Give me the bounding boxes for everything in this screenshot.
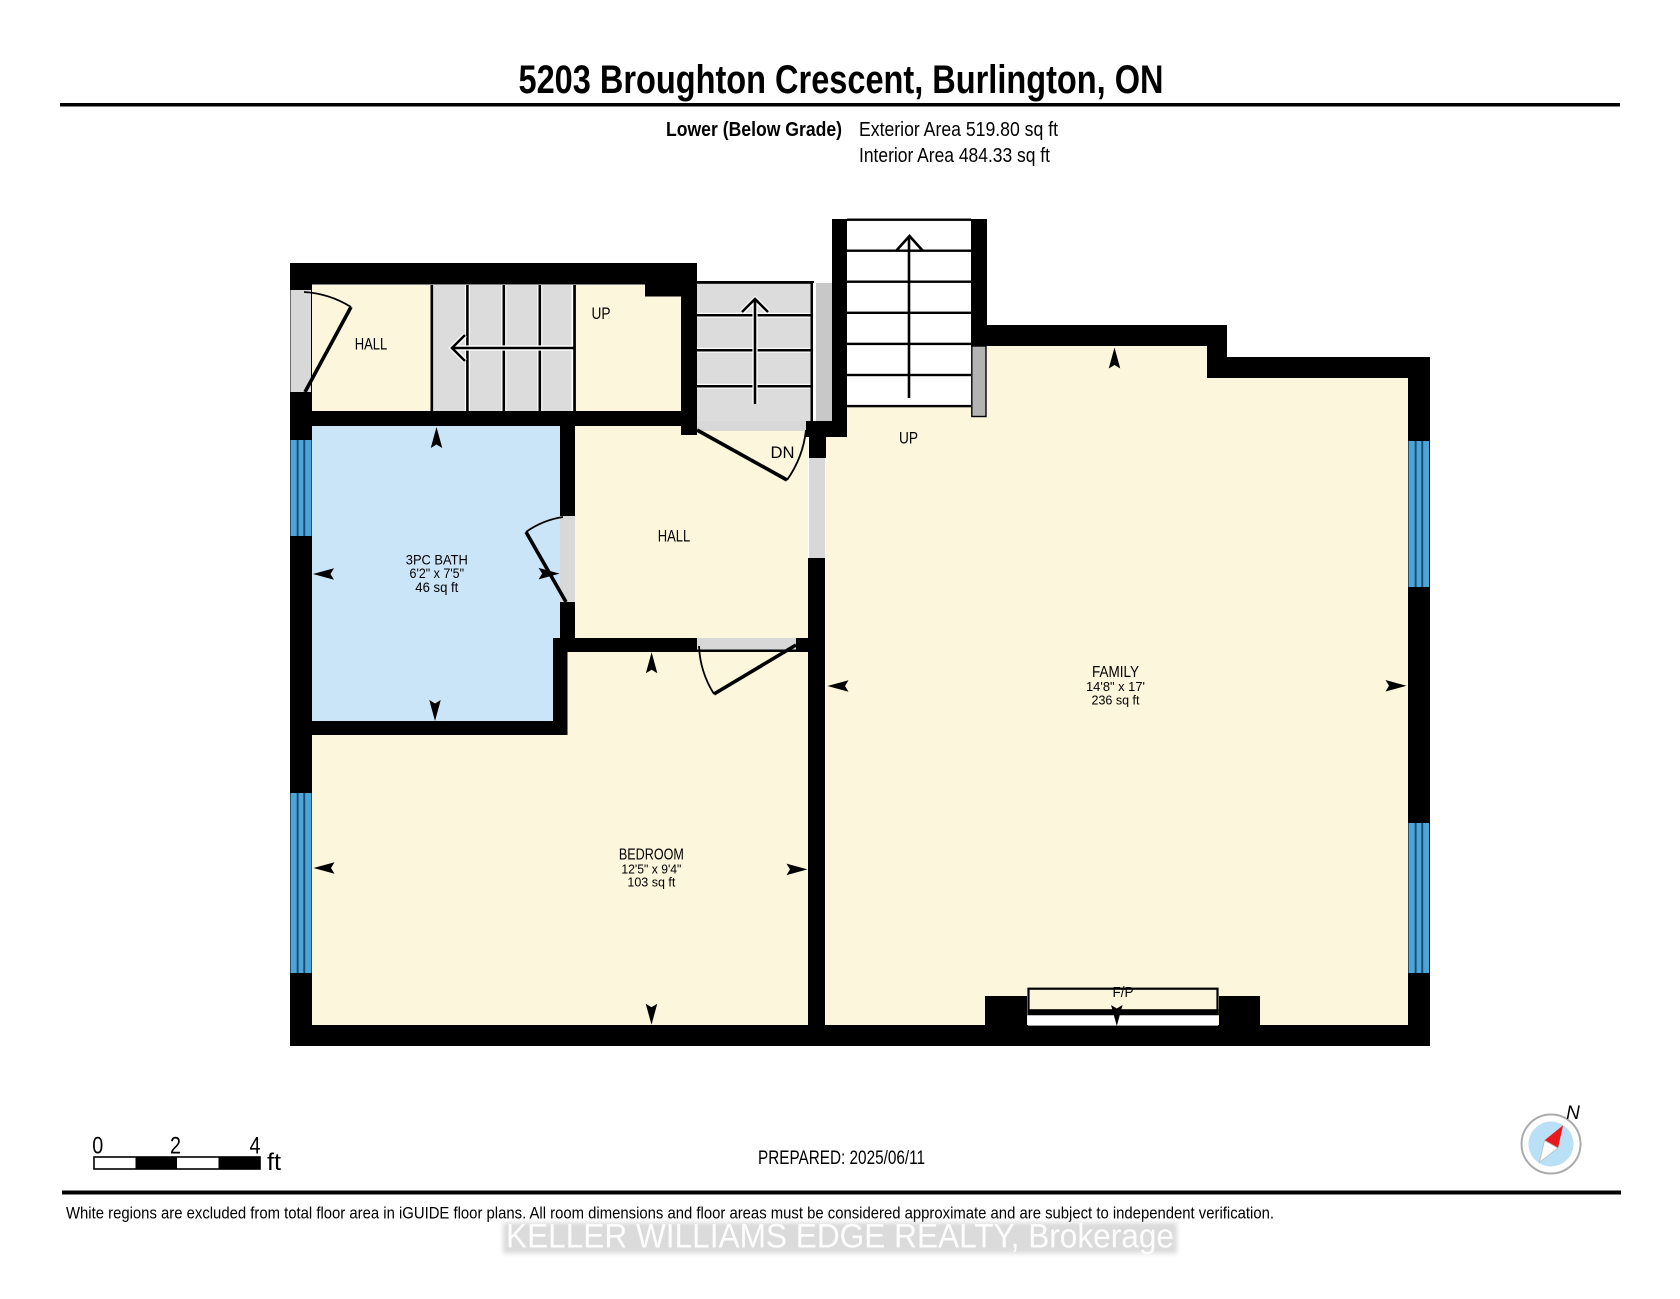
svg-text:Lower (Below Grade): Lower (Below Grade) (666, 119, 842, 141)
svg-text:6'2" x 7'5": 6'2" x 7'5" (410, 566, 465, 581)
svg-text:HALL: HALL (658, 527, 691, 546)
svg-text:Exterior Area 519.80 sq ft: Exterior Area 519.80 sq ft (859, 119, 1058, 141)
svg-text:3PC BATH: 3PC BATH (406, 552, 468, 568)
svg-text:UP: UP (592, 305, 611, 323)
svg-text:HALL: HALL (355, 335, 388, 354)
svg-text:KELLER WILLIAMS EDGE REALTY, B: KELLER WILLIAMS EDGE REALTY, Brokerage (506, 1218, 1174, 1256)
svg-text:14'8" x 17': 14'8" x 17' (1086, 679, 1145, 694)
svg-text:2: 2 (170, 1133, 181, 1160)
svg-text:5203 Broughton Crescent, Burli: 5203 Broughton Crescent, Burlington, ON (519, 58, 1164, 102)
svg-text:N: N (1566, 1103, 1580, 1124)
svg-text:46 sq ft: 46 sq ft (415, 580, 458, 595)
svg-text:PREPARED: 2025/06/11: PREPARED: 2025/06/11 (758, 1147, 925, 1169)
svg-text:Interior Area 484.33 sq ft: Interior Area 484.33 sq ft (859, 145, 1050, 167)
svg-text:DN: DN (771, 444, 795, 462)
svg-text:236 sq ft: 236 sq ft (1092, 693, 1140, 708)
svg-text:ft: ft (267, 1149, 281, 1176)
svg-text:0: 0 (92, 1133, 103, 1160)
svg-text:F/P: F/P (1113, 984, 1134, 1001)
svg-text:103 sq ft: 103 sq ft (627, 874, 675, 889)
svg-text:UP: UP (899, 430, 918, 448)
svg-text:4: 4 (250, 1133, 261, 1160)
